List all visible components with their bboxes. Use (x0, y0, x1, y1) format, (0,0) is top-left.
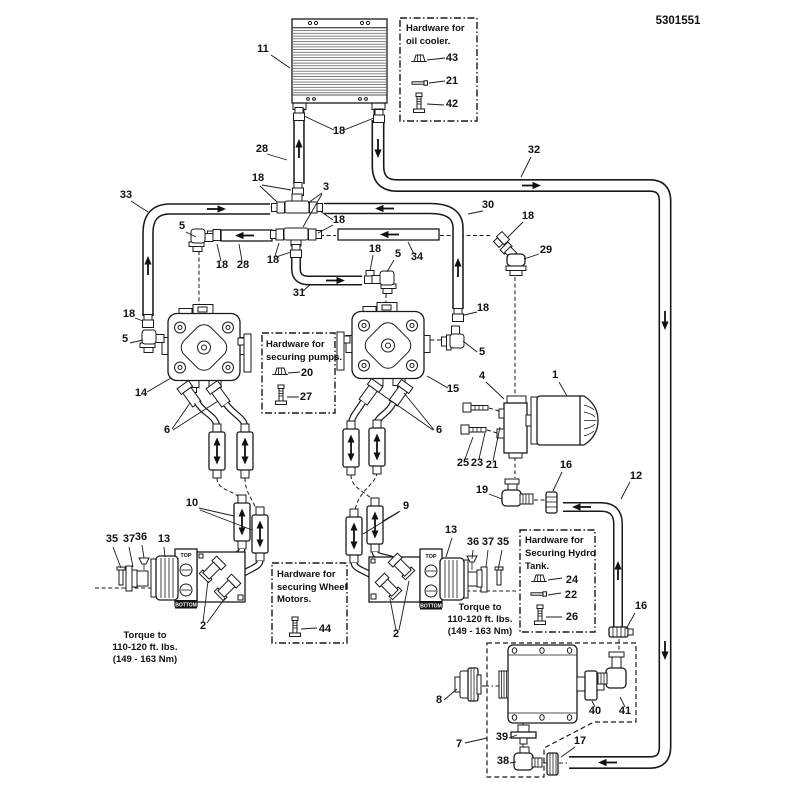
box-title-line: Tank. (525, 561, 549, 572)
elbow-41-icon (598, 652, 626, 688)
callout-34: 34 (411, 251, 424, 263)
callout-18: 18 (267, 254, 279, 266)
callout-16: 16 (635, 600, 647, 612)
callout-22: 22 (565, 589, 577, 601)
hose-ferrule (209, 424, 225, 478)
callout-18: 18 (252, 172, 264, 184)
torque-line: Torque to (458, 602, 501, 613)
hose-ferrule (346, 509, 362, 563)
bolt-25-icon (463, 403, 499, 412)
left-wheel-motor: TOP BOTTOM (117, 549, 245, 609)
box-title-line: Motors. (277, 594, 311, 605)
box-title-line: Securing Hydro (525, 548, 596, 559)
box-title-line: oil cooler. (406, 36, 450, 47)
callout-27: 27 (300, 391, 312, 403)
motor-bottom-label: BOTTOM (175, 603, 197, 609)
right-wheel-motor: TOP BOTTOM (369, 549, 503, 610)
hydraulic-parts-diagram: TOP BOTTOM TOP BOTTOM (0, 0, 800, 800)
callout-40: 40 (589, 705, 601, 717)
callout-21: 21 (486, 459, 498, 471)
oil-filter (531, 396, 598, 445)
motor-bottom-label: BOTTOM (420, 604, 442, 610)
callout-5: 5 (179, 220, 185, 232)
hose-ferrule (234, 495, 250, 549)
hose-ferrule (237, 424, 253, 478)
callout-36: 36 (467, 536, 479, 548)
callout-6: 6 (164, 424, 170, 436)
hose-ferrule (252, 507, 268, 561)
callout-18: 18 (522, 210, 534, 222)
fitting-18-icon (453, 309, 464, 322)
callout-16: 16 (560, 459, 572, 471)
callout-18: 18 (216, 259, 228, 271)
elbow-5-icon (372, 271, 396, 294)
fitting-18-icon (272, 202, 285, 213)
hose-ferrule (343, 421, 359, 475)
elbow-38-icon (514, 747, 542, 770)
elbow-29-icon (500, 242, 526, 275)
torque-line: (149 - 163 Nm) (448, 626, 512, 637)
callout-13: 13 (445, 524, 457, 536)
hardware-box-wheel-motors: Hardware for securing Wheel Motors. (272, 563, 347, 643)
callout-25: 25 (457, 457, 469, 469)
fitting-39-icon (511, 725, 536, 744)
torque-line: 110-120 ft. lbs. (448, 614, 513, 625)
callout-13: 13 (158, 533, 170, 545)
box-title-line: Hardware for (266, 339, 325, 350)
callout-26: 26 (566, 611, 578, 623)
callout-1: 1 (552, 369, 558, 381)
callout-7: 7 (456, 738, 462, 750)
fitting-18-icon (271, 229, 284, 240)
callout-28: 28 (256, 143, 268, 155)
callout-42: 42 (446, 98, 458, 110)
callout-18: 18 (333, 125, 345, 137)
torque-note-right: Torque to 110-120 ft. lbs. (149 - 163 Nm… (448, 602, 513, 637)
callout-39: 39 (496, 731, 508, 743)
hydro-tank-assembly (455, 627, 636, 777)
callout-5: 5 (122, 333, 128, 345)
left-pump (140, 305, 253, 479)
oil-cooler (292, 19, 387, 123)
torque-line: (149 - 163 Nm) (113, 654, 177, 665)
elbow-5-icon (442, 326, 465, 350)
right-pump (337, 303, 464, 476)
callout-29: 29 (540, 244, 552, 256)
fitting-36-icon (139, 558, 149, 564)
callout-15: 15 (447, 383, 459, 395)
callout-18: 18 (123, 308, 135, 320)
box-title-line: Hardware for (406, 23, 465, 34)
coupler-17-icon (547, 753, 558, 775)
callout-44: 44 (319, 623, 332, 635)
callout-18: 18 (477, 302, 489, 314)
coupler-16-icon (546, 492, 557, 513)
callout-8: 8 (436, 694, 442, 706)
elbow-5-icon (140, 330, 164, 353)
motor-top-label: TOP (180, 553, 192, 559)
torque-note-left: Torque to 110-120 ft. lbs. (149 - 163 Nm… (113, 630, 178, 665)
callout-3: 3 (323, 181, 329, 193)
callout-6: 6 (436, 424, 442, 436)
callout-4: 4 (479, 370, 486, 382)
callout-2: 2 (200, 620, 206, 632)
hardware-box-oil-cooler: Hardware for oil cooler. (400, 18, 477, 121)
callout-28: 28 (237, 259, 249, 271)
torque-line: 110-120 ft. lbs. (113, 642, 178, 653)
callout-24: 24 (566, 574, 579, 586)
screw-icon (412, 81, 428, 85)
fitting-37-icon (126, 566, 132, 591)
box-title-line: securing pumps. (266, 352, 342, 363)
callout-32: 32 (528, 144, 540, 156)
hose-ferrule (367, 498, 383, 552)
callout-35: 35 (497, 536, 509, 548)
callout-37: 37 (482, 536, 494, 548)
fitting-18-icon (294, 108, 305, 121)
tank-port (499, 671, 508, 698)
callout-38: 38 (497, 755, 509, 767)
callout-14: 14 (135, 387, 148, 399)
callout-10: 10 (186, 497, 198, 509)
bolt-23-icon (461, 425, 497, 434)
callout-19: 19 (476, 484, 488, 496)
callout-36: 36 (135, 531, 147, 543)
fitting-18-icon (291, 245, 302, 258)
fitting-18-icon (143, 315, 154, 328)
document-number: 5301551 (656, 15, 701, 27)
callout-43: 43 (446, 52, 458, 64)
callout-18: 18 (333, 214, 345, 226)
box-title-line: securing Wheel (277, 582, 347, 593)
torque-line: Torque to (123, 630, 166, 641)
callout-5: 5 (479, 346, 485, 358)
coupler-16-icon (609, 627, 633, 637)
callout-21: 21 (446, 75, 458, 87)
fitting-18-icon (309, 229, 322, 240)
callout-35: 35 (106, 533, 118, 545)
callout-9: 9 (403, 500, 409, 512)
callout-18: 18 (369, 243, 381, 255)
screw-icon (531, 592, 547, 596)
callout-12: 12 (630, 470, 642, 482)
callout-30: 30 (482, 199, 494, 211)
callout-2: 2 (393, 628, 399, 640)
hydro-tank (508, 645, 577, 723)
callout-5: 5 (395, 248, 401, 260)
callout-23: 23 (471, 457, 483, 469)
motor-top-label: TOP (425, 554, 437, 560)
callout-17: 17 (574, 735, 586, 747)
hose-ferrule (369, 420, 385, 474)
tank-cap-8-icon (455, 668, 499, 701)
callout-20: 20 (301, 367, 313, 379)
callout-33: 33 (120, 189, 132, 201)
elbow-19-icon (502, 479, 533, 506)
callout-37: 37 (123, 533, 135, 545)
box-title-line: Hardware for (277, 569, 336, 580)
box-title-line: Hardware for (525, 535, 584, 546)
fitting-18-icon (374, 110, 385, 123)
parts-diagram-page: TOP BOTTOM TOP BOTTOM (0, 0, 800, 800)
callout-11: 11 (257, 43, 269, 55)
callout-41: 41 (619, 705, 631, 717)
callout-31: 31 (293, 287, 305, 299)
